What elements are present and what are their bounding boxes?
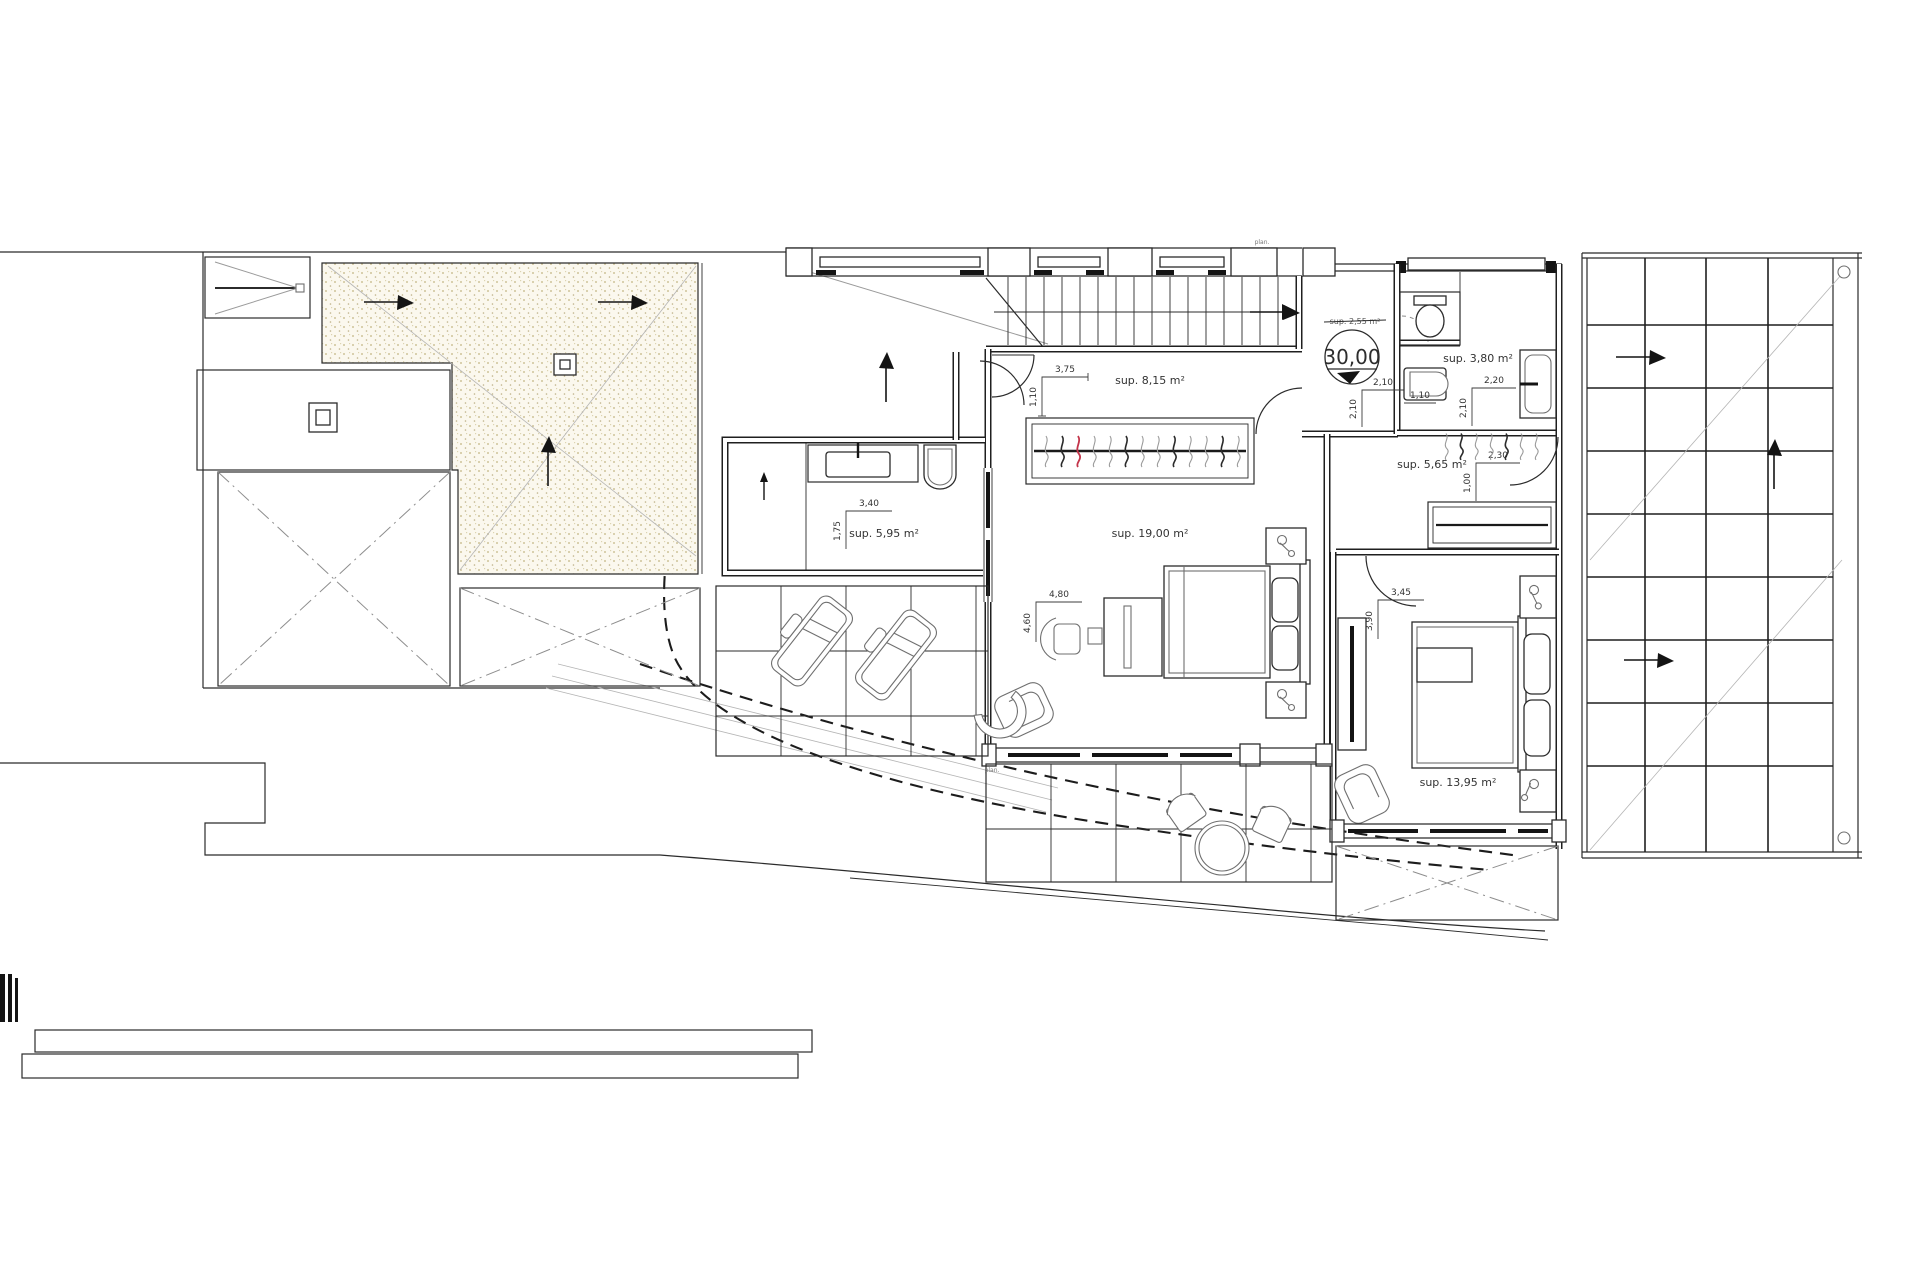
boundary-hatch [8, 974, 12, 1022]
corner-circle [1838, 832, 1850, 844]
pillar [1316, 744, 1332, 766]
window [1038, 257, 1100, 267]
dim-bath1: 3,40 1,75 [833, 499, 892, 549]
desk-chair [1041, 618, 1080, 660]
nightstand [1266, 528, 1306, 564]
floorplan-drawing: plan. sup. 8,15 m² 3,75 1,10 [0, 0, 1920, 1280]
pillar [988, 248, 1030, 276]
desk [1088, 598, 1162, 676]
dim-hall2: 2,30 1,00 [1463, 451, 1520, 501]
skylight-void-b [460, 588, 700, 686]
nightstand [1266, 682, 1306, 718]
deck-grid-center [716, 586, 1036, 756]
window [1160, 257, 1224, 267]
headboard [1300, 560, 1310, 684]
dim-label: 4,60 [1023, 613, 1033, 633]
shower-arrow [760, 472, 768, 500]
dim-label: 1,10 [1410, 391, 1430, 401]
stair-break-line [986, 278, 1044, 348]
window-micro-label: plan. [985, 767, 1000, 774]
drain-square [296, 284, 304, 292]
dim-label: 1,75 [833, 521, 843, 541]
skylight-void-c [1336, 846, 1558, 920]
south-window-band [982, 744, 1332, 766]
dim-label: 2,20 [1484, 376, 1504, 386]
room-label-bath2: sup. 3,80 m² [1443, 352, 1513, 365]
stair-landing: sup. 2,55 m² 30,00 2,10 2,10 [1250, 305, 1428, 434]
pillar [786, 248, 812, 276]
bedroom-2: sup. 13,95 m² 3,45 3,90 [1330, 556, 1566, 842]
bath-2: sup. 3,80 m² 2,20 2,10 1,10 [1404, 350, 1556, 426]
slope-arrow [1616, 350, 1666, 365]
level-value: 30,00 [1323, 345, 1380, 369]
south-window-band [1330, 820, 1566, 842]
armchair [1331, 761, 1393, 827]
wc [1414, 272, 1460, 343]
dim-corridor: 3,75 1,10 [1029, 365, 1088, 416]
room-label-bedroom2: sup. 13,95 m² [1420, 776, 1497, 789]
slope-arrow [1250, 305, 1300, 320]
pillar [1231, 248, 1277, 276]
bed-1 [1164, 560, 1310, 684]
bed-2 [1412, 616, 1550, 772]
slope-arrow [1767, 439, 1782, 489]
dim-bath2: 2,20 2,10 [1459, 376, 1516, 426]
dim-label: 1,00 [1463, 473, 1473, 493]
floorplan-canvas: plan. sup. 8,15 m² 3,75 1,10 [0, 0, 1920, 1280]
void-diagonal [790, 266, 1048, 344]
hall-2: sup. 5,65 m² 2,30 1,00 [1397, 434, 1558, 549]
dim-label: 3,40 [859, 499, 879, 509]
dim-label: 2,10 [1349, 399, 1359, 419]
terrace-chair [1251, 801, 1295, 844]
door-arc [1366, 556, 1416, 606]
corner-circle [1838, 266, 1850, 278]
skylight-void-a [218, 472, 450, 686]
nightstand [1520, 576, 1556, 618]
dim-label: 4,80 [1049, 590, 1069, 600]
dim-label: 1,10 [1029, 387, 1039, 407]
retaining-wall-bar [35, 1030, 812, 1052]
window [820, 257, 980, 267]
wardrobe-bedroom2 [1338, 618, 1366, 750]
pillar [1240, 744, 1260, 766]
room-label-bedroom1: sup. 19,00 m² [1112, 527, 1189, 540]
slope-arrow [1624, 653, 1674, 668]
terrace-chair [1162, 788, 1208, 833]
west-window [983, 468, 993, 602]
room-label-hall2: sup. 5,65 m² [1397, 458, 1467, 471]
bath-counter [808, 443, 918, 482]
pergola-grid [1582, 253, 1862, 858]
toilet-tank [1414, 296, 1446, 305]
dim-label: 3,75 [1055, 365, 1075, 375]
dim-label: 3,45 [1391, 588, 1411, 598]
pillow [1524, 700, 1550, 756]
gravel-roof-stipple [322, 263, 698, 574]
property-dashed-line [640, 664, 1520, 856]
north-facade: plan. [786, 239, 1562, 276]
wardrobe-corridor [1026, 418, 1254, 484]
window-micro-label: plan. [1255, 239, 1270, 246]
pillar [982, 744, 996, 766]
pillar [1303, 248, 1335, 276]
boundary-hatch [15, 978, 18, 1022]
retaining-wall-bar [22, 1054, 798, 1078]
monitor [1124, 606, 1131, 668]
dim-label: 2,10 [1373, 378, 1393, 388]
slope-arrow [879, 352, 894, 402]
door-arc [1256, 388, 1302, 434]
boundary-hatch [0, 974, 5, 1022]
door-arc [1510, 437, 1558, 485]
pillar [1552, 820, 1566, 842]
toilet-bowl [1416, 305, 1444, 337]
nightstand [1517, 770, 1556, 812]
terrace-south: plan. [985, 764, 1332, 882]
lounge-chair [759, 586, 856, 690]
pillar [1108, 248, 1152, 276]
bathtub [1520, 350, 1556, 418]
window [1408, 258, 1545, 270]
dim-label: 2,10 [1459, 398, 1469, 418]
pillow [1272, 626, 1298, 670]
pillow [1272, 578, 1298, 622]
hangers [1445, 434, 1538, 460]
lounge-chair [843, 600, 940, 704]
blanket-fold [1417, 648, 1472, 682]
bedroom-1: sup. 19,00 m² 4,80 4,60 [982, 468, 1332, 766]
room-label-corridor: sup. 8,15 m² [1115, 374, 1185, 387]
pillow [1524, 634, 1550, 694]
corridor: sup. 8,15 m² 3,75 1,10 [992, 355, 1254, 484]
room-label-bath1: sup. 5,95 m² [849, 527, 919, 540]
